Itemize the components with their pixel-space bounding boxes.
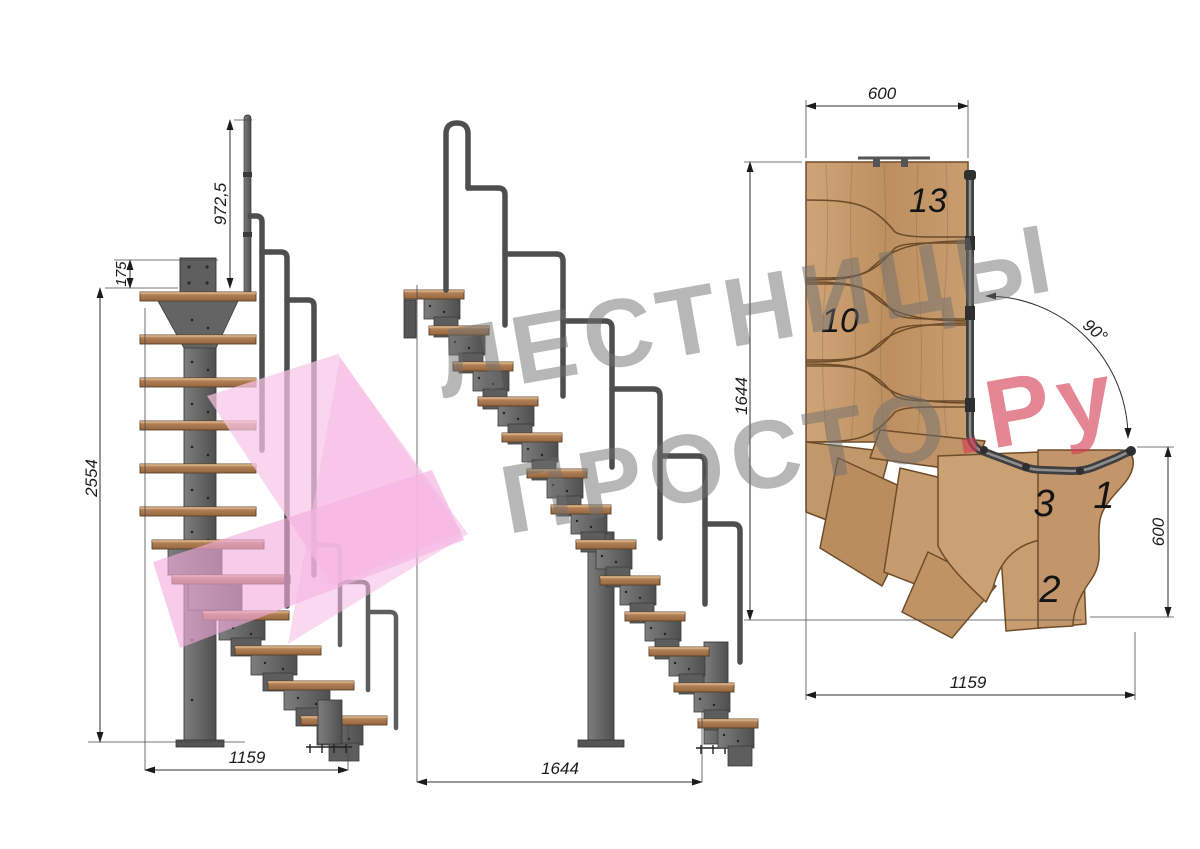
side-handrail-post [244,115,251,295]
side-central-column [184,300,216,742]
column-foot [176,740,224,747]
handrail-loop [446,123,468,290]
wall-bracket [404,300,416,338]
dim-600-right-label: 600 [1149,517,1168,546]
step-number-3: 3 [1033,483,1054,525]
dim-175-label: 175 [113,261,130,287]
post-joint [243,172,252,177]
step-number-2: 2 [1038,569,1060,611]
post-joint [243,232,252,237]
staircase-technical-drawing: 972,5 175 2554 1159 1644 600 1644 90° [0,0,1200,849]
dim-600-top-label: 600 [868,84,897,103]
step-number-13: 13 [909,182,947,220]
mounting-plate [180,258,216,292]
dim-1644-front-label: 1644 [541,759,579,778]
side-support-column [318,700,342,744]
dim-972-label: 972,5 [211,182,230,225]
dim-1159-plan-label: 1159 [950,673,987,692]
front-column-foot [578,740,624,747]
drawing-svg: 972,5 175 2554 1159 1644 600 1644 90° [0,0,1200,849]
step-number-1: 1 [1093,475,1114,517]
dim-1159-side-label: 1159 [229,748,266,767]
dim-2554-label: 2554 [82,459,101,498]
